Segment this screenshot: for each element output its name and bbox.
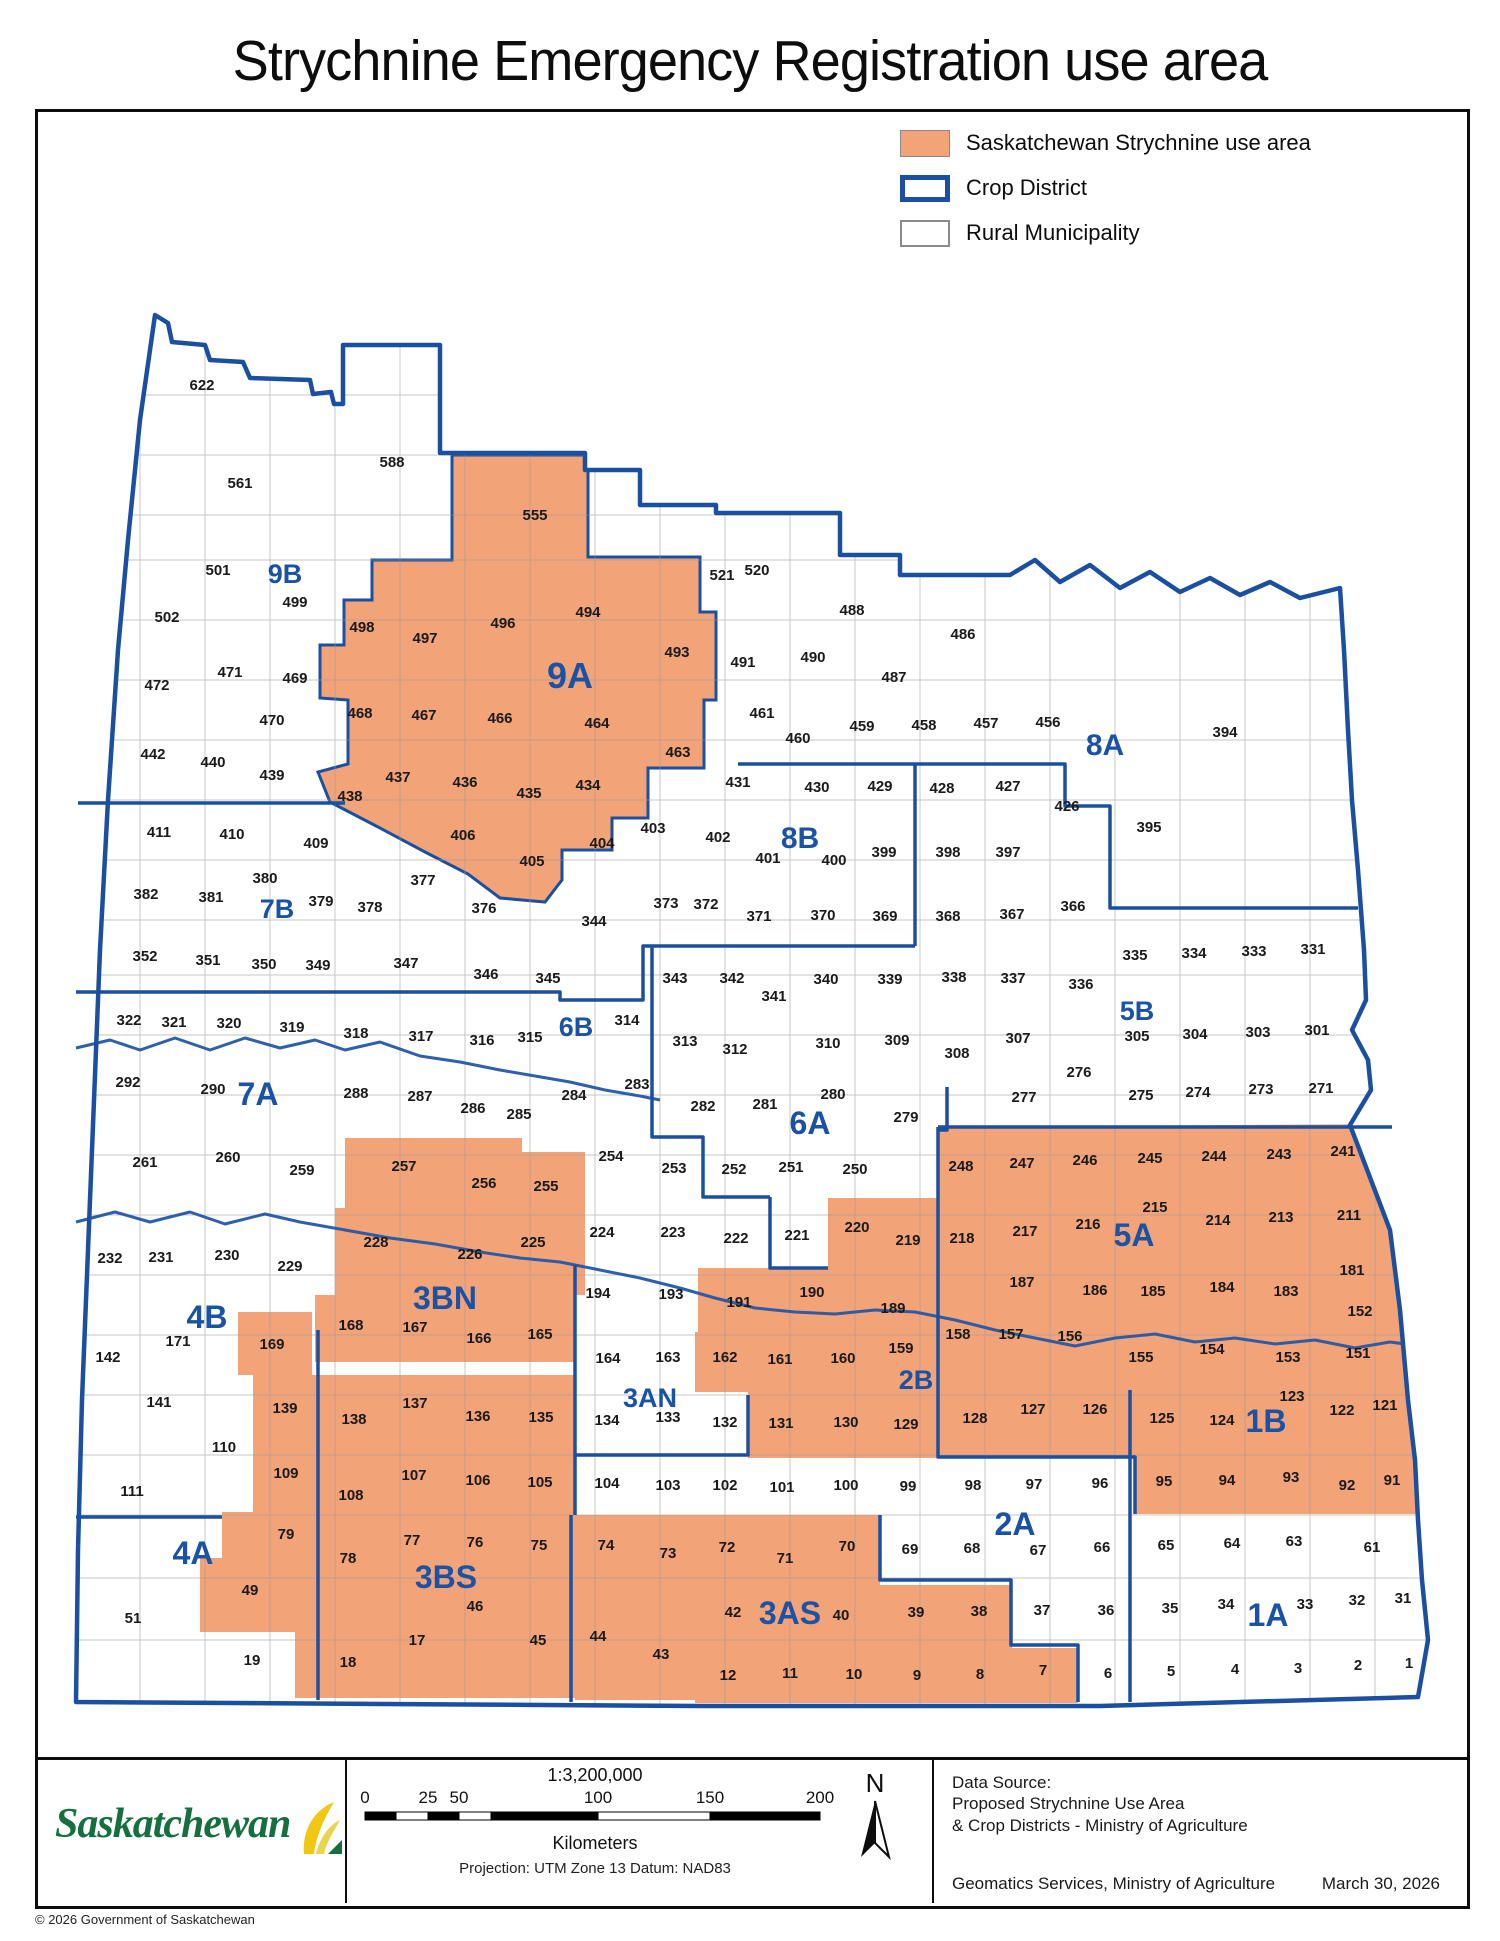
rm-number: 46 [467,1598,484,1615]
use-area-region [345,1138,522,1208]
use-area-region [938,1312,1410,1396]
rm-number: 3 [1294,1660,1302,1677]
rm-number: 132 [712,1414,737,1431]
rm-number: 217 [1012,1223,1037,1240]
rm-number: 317 [408,1028,433,1045]
scale-tick: 150 [696,1788,724,1808]
rm-number: 91 [1384,1472,1401,1489]
rm-number: 226 [457,1246,482,1263]
rm-number: 501 [205,562,230,579]
saskatchewan-logo-text: Saskatchewan [55,1800,290,1848]
rm-number: 257 [391,1158,416,1175]
rm-number: 372 [693,896,718,913]
rm-number: 222 [723,1230,748,1247]
rm-number: 339 [877,971,902,988]
rm-number: 437 [385,769,410,786]
rm-number: 497 [412,630,437,647]
north-arrow-icon [855,1799,895,1861]
rm-number: 122 [1329,1402,1354,1419]
scale-bar-segment [598,1812,710,1820]
rm-number: 246 [1072,1152,1097,1169]
rm-number: 380 [252,870,277,887]
rm-number: 65 [1158,1537,1175,1554]
rm-number: 223 [660,1224,685,1241]
rm-number: 307 [1005,1030,1030,1047]
rm-number: 152 [1347,1303,1372,1320]
rm-number: 165 [527,1326,552,1343]
rm-number: 229 [277,1258,302,1275]
rm-number: 127 [1020,1401,1045,1418]
credit-row: Geomatics Services, Ministry of Agricult… [952,1874,1450,1894]
rm-number: 129 [893,1416,918,1433]
rm-number: 469 [282,670,307,687]
rm-number: 274 [1185,1084,1211,1101]
rm-number: 151 [1345,1345,1370,1362]
rm-number: 108 [338,1487,363,1504]
rm-number: 61 [1364,1539,1381,1556]
use-area-region [695,1648,1078,1703]
rm-number: 193 [658,1286,683,1303]
rm-number: 218 [949,1230,974,1247]
rm-number: 256 [471,1175,496,1192]
rm-number: 403 [640,820,665,837]
rm-number: 521 [709,567,734,584]
rm-number: 318 [343,1025,368,1042]
rm-number: 260 [215,1149,240,1166]
rm-number: 247 [1009,1155,1034,1172]
rm-number: 141 [146,1394,171,1411]
rm-number: 405 [519,853,544,870]
rm-number: 32 [1349,1592,1366,1609]
rm-number: 410 [219,826,244,843]
rm-number: 130 [833,1414,858,1431]
scale-bar-segment [491,1812,598,1820]
rm-number: 6 [1104,1665,1112,1682]
rm-number: 261 [132,1154,157,1171]
rm-number: 319 [279,1019,304,1036]
scale-bar [300,1810,890,1824]
rm-number: 184 [1209,1279,1235,1296]
rm-number: 377 [410,872,435,889]
rm-number: 314 [614,1012,640,1029]
rm-number: 103 [655,1477,680,1494]
rm-number: 373 [653,895,678,912]
rm-number: 463 [665,744,690,761]
rm-number: 51 [125,1610,142,1627]
rm-number: 245 [1137,1150,1162,1167]
rm-number: 105 [527,1474,552,1491]
rm-number: 220 [844,1219,869,1236]
rm-number: 157 [998,1326,1023,1343]
rm-number: 33 [1297,1596,1314,1613]
rm-number: 334 [1181,945,1207,962]
rm-number: 18 [340,1654,357,1671]
map: 6225885615555014995024984974964944935215… [0,0,1500,1941]
north-arrow: N [845,1768,905,1866]
rural-municipality-swatch-icon [900,220,950,247]
rm-number: 124 [1209,1412,1235,1429]
rm-number: 79 [278,1526,295,1543]
district-label: 3BN [413,1280,477,1316]
data-source-line: Proposed Strychnine Use Area [952,1793,1452,1814]
rm-number: 498 [349,619,374,636]
rm-number: 438 [337,788,362,805]
rm-number: 135 [528,1409,553,1426]
district-label: 9A [547,655,593,696]
rm-number: 136 [465,1408,490,1425]
rm-number: 250 [842,1161,867,1178]
rm-number: 456 [1035,714,1060,731]
rm-number: 428 [929,780,954,797]
rm-number: 160 [830,1350,855,1367]
rm-number: 313 [672,1033,697,1050]
rm-number: 304 [1182,1026,1208,1043]
footer-divider [35,1757,1467,1760]
rm-number: 496 [490,615,515,632]
rm-number: 221 [784,1227,809,1244]
rm-number: 251 [778,1159,803,1176]
rm-number: 342 [719,970,744,987]
rm-number: 442 [140,746,165,763]
rm-number: 191 [726,1294,751,1311]
rm-number: 331 [1300,941,1325,958]
rm-number: 101 [769,1479,794,1496]
rm-number: 468 [347,705,372,722]
rm-number: 434 [575,777,601,794]
rm-number: 346 [473,966,498,983]
page: Strychnine Emergency Registration use ar… [0,0,1500,1941]
legend-label: Rural Municipality [966,220,1140,246]
rm-number: 351 [195,952,220,969]
rm-number: 241 [1330,1143,1355,1160]
rm-number: 126 [1082,1401,1107,1418]
rm-number: 110 [212,1439,236,1456]
rm-number: 279 [893,1109,918,1126]
scale-bar-segment [396,1812,428,1820]
district-label: 1A [1248,1597,1289,1633]
rm-number: 96 [1092,1475,1109,1492]
rm-number: 404 [589,835,615,852]
rm-number: 370 [810,907,835,924]
rm-number: 161 [767,1351,792,1368]
rm-number: 215 [1142,1199,1167,1216]
rm-number: 499 [282,594,307,611]
district-label: 7A [238,1076,279,1112]
rm-number: 93 [1283,1469,1300,1486]
rm-number: 185 [1140,1283,1165,1300]
scale-bar-segment [365,1812,396,1820]
rm-number: 301 [1304,1022,1329,1039]
rm-number: 214 [1205,1212,1231,1229]
rm-number: 216 [1075,1216,1100,1233]
rm-number: 371 [746,908,771,925]
rm-number: 309 [884,1032,909,1049]
data-source-line: Data Source: [952,1772,1452,1793]
rm-number: 379 [308,893,333,910]
rm-number: 464 [584,715,610,732]
rm-number: 316 [469,1032,494,1049]
rm-number: 125 [1149,1410,1174,1427]
rm-number: 310 [815,1035,840,1052]
rm-number: 10 [846,1666,863,1683]
scale-ticks: 02550100150200 [300,1788,890,1810]
credit-text: Geomatics Services, Ministry of Agricult… [952,1874,1275,1894]
rm-number: 411 [147,824,171,841]
rm-number: 75 [531,1537,548,1554]
rm-number: 588 [379,454,404,471]
north-label: N [845,1768,905,1799]
rm-number: 345 [535,970,560,987]
rm-number: 64 [1224,1535,1241,1552]
rm-number: 37 [1034,1602,1051,1619]
rm-number: 253 [661,1160,686,1177]
rm-number: 427 [995,778,1020,795]
footer-divider [932,1760,934,1903]
rm-number: 395 [1136,819,1161,836]
rm-number: 288 [343,1085,368,1102]
legend-item-use-area: Saskatchewan Strychnine use area [900,128,1311,158]
scale-bar-block: 1:3,200,000 02550100150200 Kilometers Pr… [300,1765,890,1877]
rm-number: 344 [581,913,607,930]
rm-number: 169 [259,1336,284,1353]
rm-number: 186 [1082,1282,1107,1299]
rm-number: 17 [409,1632,426,1649]
rm-number: 352 [132,948,157,965]
rm-number: 137 [402,1395,427,1412]
rm-number: 382 [133,886,158,903]
rm-number: 183 [1273,1283,1298,1300]
rm-number: 231 [148,1249,173,1266]
rm-number: 142 [95,1349,120,1366]
rm-number: 107 [401,1467,426,1484]
rm-number: 457 [973,715,998,732]
rm-number: 7 [1039,1662,1047,1679]
rm-number: 159 [888,1340,913,1357]
rm-number: 139 [272,1400,297,1417]
rm-number: 98 [965,1477,982,1494]
rm-number: 167 [402,1319,427,1336]
copyright-text: © 2026 Government of Saskatchewan [35,1912,255,1927]
rm-number: 502 [154,609,179,626]
scale-tick: 25 [419,1788,438,1808]
rm-number: 45 [530,1632,547,1649]
rm-number: 66 [1094,1539,1111,1556]
rm-number: 271 [1308,1080,1333,1097]
rm-number: 4 [1231,1661,1240,1678]
rm-number: 303 [1245,1024,1270,1041]
district-label: 8B [781,822,819,855]
rm-number: 439 [259,767,284,784]
rm-number: 400 [821,852,846,869]
rm-number: 248 [948,1158,973,1175]
scale-bar-segment [428,1812,459,1820]
rm-number: 487 [881,669,906,686]
rm-number: 225 [520,1234,545,1251]
rm-number: 436 [452,774,477,791]
rm-number: 494 [575,604,601,621]
rm-number: 320 [216,1015,241,1032]
data-source-block: Data Source: Proposed Strychnine Use Are… [952,1772,1452,1836]
rm-number: 555 [522,507,547,524]
rm-number: 409 [303,835,328,852]
rm-number: 284 [561,1087,587,1104]
rm-number: 156 [1057,1328,1082,1345]
district-label: 5A [1114,1217,1155,1253]
rm-number: 168 [338,1317,363,1334]
rm-number: 138 [341,1411,366,1428]
rm-number: 76 [467,1534,484,1551]
rm-number: 280 [820,1086,845,1103]
rm-number: 72 [719,1539,736,1556]
rm-number: 99 [900,1478,917,1495]
district-label: 2B [899,1365,934,1395]
rm-number: 282 [690,1098,715,1115]
rm-number: 70 [839,1538,856,1555]
rm-number: 335 [1122,947,1147,964]
scale-bar-segment [459,1812,491,1820]
rm-number: 367 [999,906,1024,923]
rm-number: 153 [1275,1349,1300,1366]
legend-label: Crop District [966,175,1087,201]
rm-number: 429 [867,778,892,795]
rm-number: 44 [590,1628,607,1645]
rm-number: 321 [161,1014,186,1031]
rm-number: 11 [782,1665,798,1682]
rm-number: 350 [251,956,276,973]
rm-number: 9 [913,1667,921,1684]
rm-number: 35 [1162,1600,1179,1617]
district-label: 2A [995,1506,1036,1542]
rm-number: 401 [755,850,780,867]
rm-number: 155 [1128,1349,1153,1366]
rm-number: 369 [872,908,897,925]
projection-label: Projection: UTM Zone 13 Datum: NAD83 [300,1860,890,1877]
rm-number: 69 [902,1541,919,1558]
rm-number: 290 [200,1081,225,1098]
rm-number: 94 [1219,1472,1236,1489]
district-label: 3AS [759,1595,821,1631]
rm-number: 490 [800,649,825,666]
rm-number: 259 [289,1162,314,1179]
scale-tick: 50 [450,1788,469,1808]
rm-number: 213 [1268,1209,1293,1226]
rm-number: 308 [944,1045,969,1062]
data-source-line: & Crop Districts - Ministry of Agricultu… [952,1815,1452,1836]
rm-number: 486 [950,626,975,643]
scale-ratio: 1:3,200,000 [300,1765,890,1786]
scale-bar-segment [710,1812,820,1820]
district-label: 1B [1246,1403,1287,1439]
district-label: 3BS [415,1559,477,1595]
rm-number: 100 [833,1477,858,1494]
scale-tick: 0 [360,1788,369,1808]
rm-number: 19 [244,1652,261,1669]
rm-number: 163 [655,1349,680,1366]
rm-number: 2 [1354,1657,1362,1674]
rm-number: 74 [598,1537,615,1554]
rm-number: 31 [1395,1590,1412,1607]
scale-tick: 200 [806,1788,834,1808]
district-label: 5B [1120,996,1155,1026]
rm-number: 406 [450,827,475,844]
rm-number: 63 [1286,1533,1303,1550]
date-text: March 30, 2026 [1322,1874,1440,1894]
rm-number: 347 [393,955,418,972]
rm-number: 40 [833,1607,850,1624]
scale-tick: 100 [584,1788,612,1808]
rm-number: 78 [340,1550,357,1567]
rm-number: 458 [911,717,936,734]
rm-number: 273 [1248,1081,1273,1098]
rm-number: 194 [585,1285,611,1302]
rm-number: 92 [1339,1477,1356,1494]
rm-number: 8 [976,1666,984,1683]
rm-number: 42 [725,1604,742,1621]
rm-number: 440 [200,754,225,771]
rm-number: 219 [895,1232,920,1249]
rm-number: 286 [460,1100,485,1117]
rm-number: 312 [722,1041,747,1058]
rm-number: 104 [594,1475,620,1492]
rm-number: 95 [1156,1473,1173,1490]
rm-number: 287 [407,1088,432,1105]
rm-number: 158 [945,1326,970,1343]
rm-number: 283 [624,1076,649,1093]
rm-number: 121 [1372,1397,1397,1414]
rm-number: 397 [995,844,1020,861]
rm-number: 488 [839,602,864,619]
legend-item-crop-district: Crop District [900,173,1311,203]
rm-number: 49 [242,1582,259,1599]
rm-number: 333 [1241,943,1266,960]
rm-number: 189 [880,1300,905,1317]
district-label: 7B [260,894,295,924]
rm-number: 461 [749,705,774,722]
rm-number: 97 [1026,1476,1043,1493]
rm-number: 243 [1266,1146,1291,1163]
legend-label: Saskatchewan Strychnine use area [966,130,1311,156]
rm-number: 378 [357,899,382,916]
rm-number: 368 [935,908,960,925]
use-area-region [695,1585,1012,1648]
rm-number: 36 [1098,1602,1115,1619]
rm-number: 322 [116,1012,141,1029]
rm-number: 381 [198,889,223,906]
rm-number: 254 [598,1148,624,1165]
rm-number: 366 [1060,898,1085,915]
rm-number: 459 [849,718,874,735]
rm-number: 43 [653,1646,670,1663]
rm-number: 39 [908,1604,925,1621]
rm-number: 622 [189,377,214,394]
rm-number: 190 [799,1284,824,1301]
rm-number: 292 [115,1074,140,1091]
rm-number: 472 [144,677,169,694]
use-area-swatch-icon [900,130,950,157]
rm-number: 252 [721,1161,746,1178]
district-label: 4A [173,1535,214,1571]
rm-number: 426 [1054,798,1079,815]
rm-number: 467 [411,707,436,724]
rm-number: 67 [1030,1542,1047,1559]
rm-number: 341 [761,988,786,1005]
rm-number: 275 [1128,1087,1153,1104]
rm-number: 337 [1000,970,1025,987]
rm-number: 131 [768,1415,793,1432]
rm-number: 471 [217,664,242,681]
rm-number: 402 [705,829,730,846]
district-label: 6B [559,1012,594,1042]
